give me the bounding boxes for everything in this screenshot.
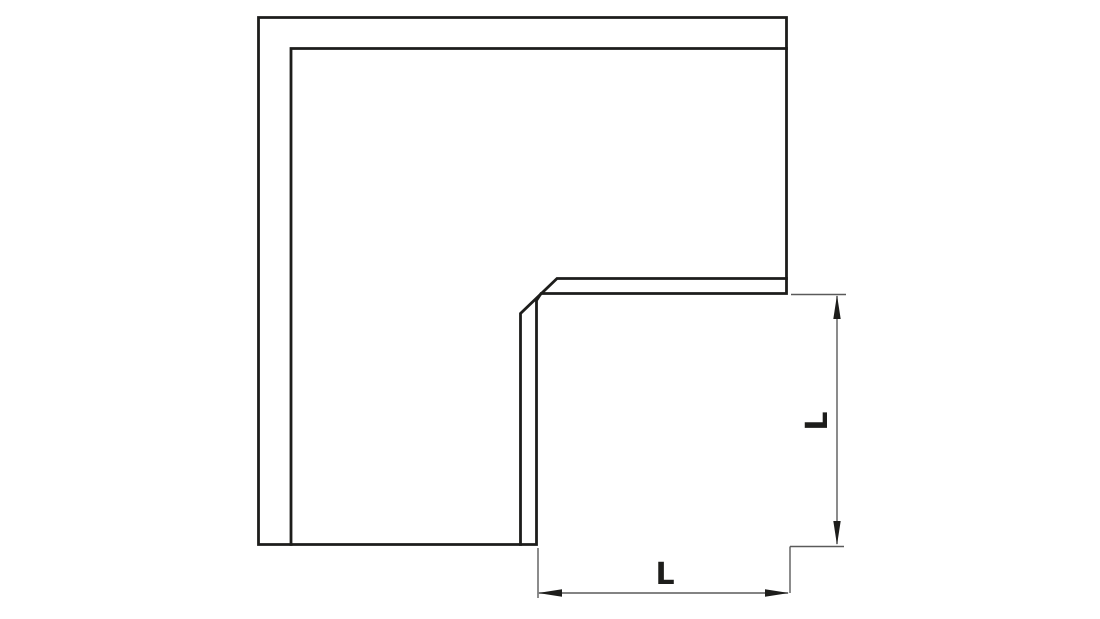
arrowhead-down-icon xyxy=(833,521,840,545)
arrowhead-right-icon xyxy=(765,589,789,596)
part-geometry xyxy=(259,18,787,545)
arrowhead-up-icon xyxy=(833,295,840,319)
drawing-canvas: L L xyxy=(0,0,1100,619)
part-outer-contour xyxy=(259,18,787,545)
arrowhead-left-icon xyxy=(538,589,562,596)
flat-angle-drawing xyxy=(0,0,1100,619)
part-bend-edge xyxy=(521,279,787,545)
vertical-dimension-label: L xyxy=(803,397,833,445)
horizontal-dimension-label: L xyxy=(641,560,689,590)
